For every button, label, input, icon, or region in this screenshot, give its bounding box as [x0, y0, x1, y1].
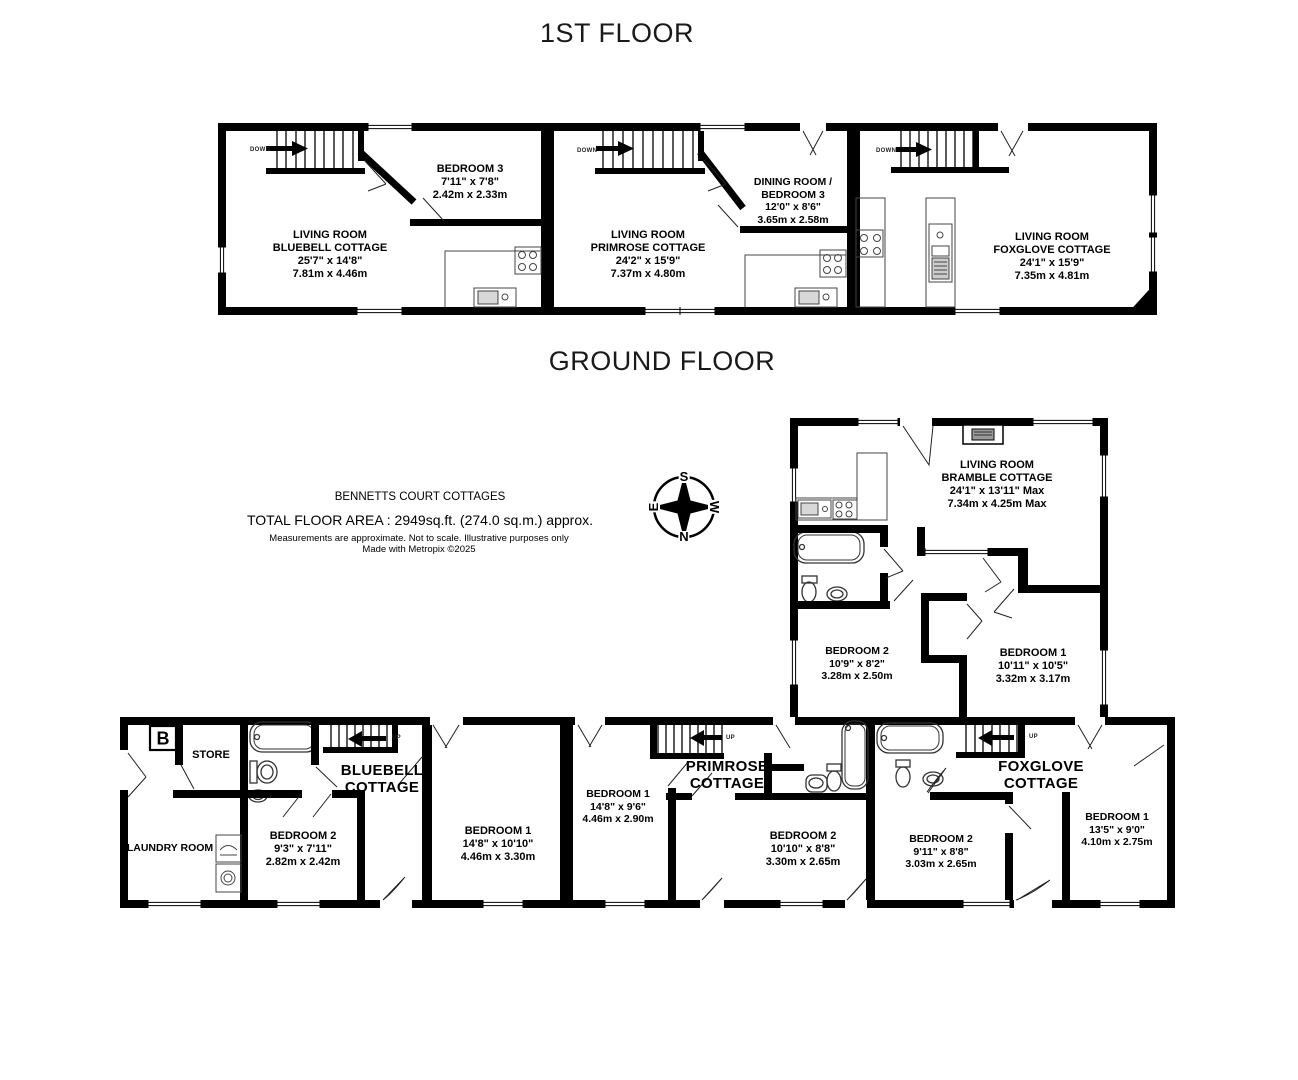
up-label-bluebell: UP — [392, 735, 401, 741]
door-swing — [128, 753, 146, 797]
compass-north: N — [678, 531, 689, 543]
ground-floor-title: GROUND FLOOR — [549, 346, 776, 377]
label-bluebell-bedroom2: BEDROOM 2 9'3" x 7'11" 2.82m x 2.42m — [266, 830, 341, 869]
total-floor-area: TOTAL FLOOR AREA : 2949sq.ft. (274.0 sq.… — [247, 512, 593, 528]
label-primrose-bedroom2: BEDROOM 2 10'10" x 8'8" 3.30m x 2.65m — [766, 830, 841, 869]
credit: Made with Metropix ©2025 — [362, 544, 475, 555]
compass-east: E — [648, 502, 660, 513]
label-foxglove-bedroom2: BEDROOM 2 9'11" x 8'8" 3.03m x 2.65m — [905, 833, 976, 871]
label-primrose-dining: DINING ROOM / BEDROOM 3 12'0" x 8'6" 3.6… — [754, 176, 832, 226]
label-bramble-living: LIVING ROOM BRAMBLE COTTAGE 24'1" x 13'1… — [941, 459, 1052, 511]
bathroom-primrose — [806, 721, 868, 792]
door-swing — [903, 426, 933, 465]
compass-south: S — [679, 471, 690, 483]
bathroom-foxglove — [877, 723, 943, 787]
label-foxglove-living: LIVING ROOM FOXGLOVE COTTAGE 24'1" x 15'… — [993, 231, 1110, 283]
up-label-primrose: UP — [726, 735, 735, 741]
label-primrose-bedroom1: BEDROOM 1 14'8" x 9'6" 4.46m x 2.90m — [582, 788, 653, 826]
disclaimer: Measurements are approximate. Not to sca… — [269, 533, 568, 544]
compass-west: W — [708, 500, 720, 514]
label-bluebell-living: LIVING ROOM BLUEBELL COTTAGE 25'7" x 14'… — [273, 229, 387, 281]
first-floor-plan — [218, 123, 1157, 315]
down-arrow — [916, 142, 932, 157]
property-name: BENNETTS COURT COTTAGES — [335, 491, 506, 503]
kitchen-primrose — [745, 250, 846, 307]
up-arrow — [978, 730, 992, 746]
label-primrose-cottage: PRIMROSE COTTAGE — [686, 759, 768, 792]
label-bramble-bedroom2: BEDROOM 2 10'9" x 8'2" 3.28m x 2.50m — [821, 645, 892, 683]
door-swing — [803, 131, 1023, 156]
bathroom-bramble — [794, 532, 864, 602]
boiler-label: B — [157, 729, 170, 750]
up-label-foxglove: UP — [1029, 734, 1038, 740]
door-swing — [383, 877, 1050, 900]
down-arrow — [618, 141, 634, 156]
kitchen-foxglove — [856, 198, 955, 307]
label-primrose-living: LIVING ROOM PRIMROSE COTTAGE 24'2" x 15'… — [591, 229, 706, 281]
down-label-primrose: DOWN — [577, 148, 597, 154]
fireplace — [963, 425, 1003, 444]
label-laundry: LAUNDRY ROOM — [127, 842, 213, 855]
label-bramble-bedroom1: BEDROOM 1 10'11" x 10'5" 3.32m x 3.17m — [996, 647, 1071, 686]
staircase-up-bluebell — [323, 723, 398, 753]
label-foxglove-bedroom1: BEDROOM 1 13'5" x 9'0" 4.10m x 2.75m — [1081, 811, 1152, 849]
floorplan-graphics — [0, 0, 1298, 1080]
laundry-appliances — [216, 835, 241, 892]
down-label-foxglove: DOWN — [876, 148, 896, 154]
label-bluebell-bedroom1: BEDROOM 1 14'8" x 10'10" 4.46m x 3.30m — [461, 825, 536, 864]
staircase-down-primrose — [595, 131, 705, 174]
first-floor-title: 1ST FLOOR — [540, 18, 694, 49]
label-bluebell-cottage: BLUEBELL COTTAGE — [341, 763, 423, 796]
label-store: STORE — [192, 749, 230, 762]
label-foxglove-cottage: FOXGLOVE COTTAGE — [998, 759, 1084, 792]
kitchen-bramble — [796, 453, 887, 520]
staircase-up-foxglove — [956, 723, 1025, 758]
floorplan-page: 1ST FLOOR GROUND FLOOR BENNETTS COURT CO… — [0, 0, 1298, 1080]
window — [148, 900, 1140, 908]
staircase-down-bluebell — [266, 131, 365, 174]
staircase-up-primrose — [650, 722, 724, 759]
kitchen-bluebell — [445, 247, 541, 307]
label-bluebell-bedroom3: BEDROOM 3 7'11" x 7'8" 2.42m x 2.33m — [433, 163, 508, 202]
down-label-bluebell: DOWN — [250, 147, 270, 153]
staircase-down-foxglove — [891, 131, 1009, 173]
up-arrow — [690, 730, 704, 746]
